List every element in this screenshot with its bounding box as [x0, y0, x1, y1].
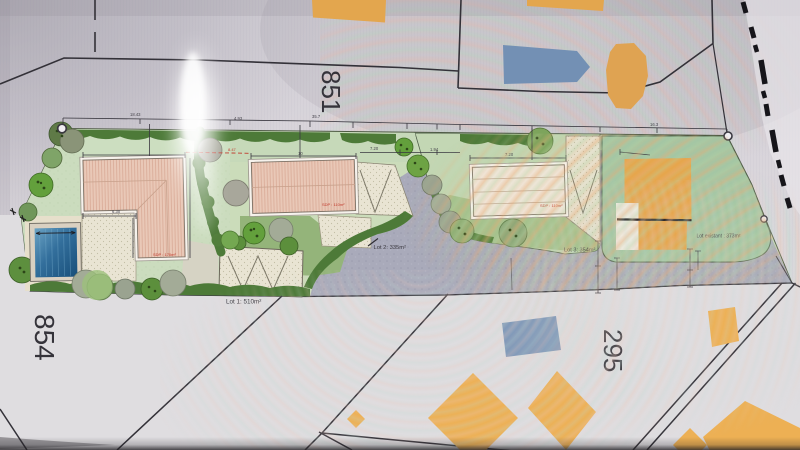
svg-text:16.3: 16.3 — [650, 122, 659, 127]
svg-text:SDP : 170m²: SDP : 170m² — [153, 252, 176, 257]
svg-text:10: 10 — [298, 151, 303, 156]
svg-text:4.93: 4.93 — [234, 116, 243, 121]
svg-text:851: 851 — [316, 70, 346, 113]
svg-text:SDP : 110m²: SDP : 110m² — [322, 202, 345, 207]
svg-text:6.30: 6.30 — [112, 209, 121, 214]
svg-text:7.20: 7.20 — [370, 146, 379, 151]
svg-text:8.47: 8.47 — [228, 147, 237, 152]
svg-text:35.7: 35.7 — [312, 114, 321, 119]
svg-text:18.43: 18.43 — [130, 112, 141, 117]
svg-text:854: 854 — [29, 314, 60, 361]
